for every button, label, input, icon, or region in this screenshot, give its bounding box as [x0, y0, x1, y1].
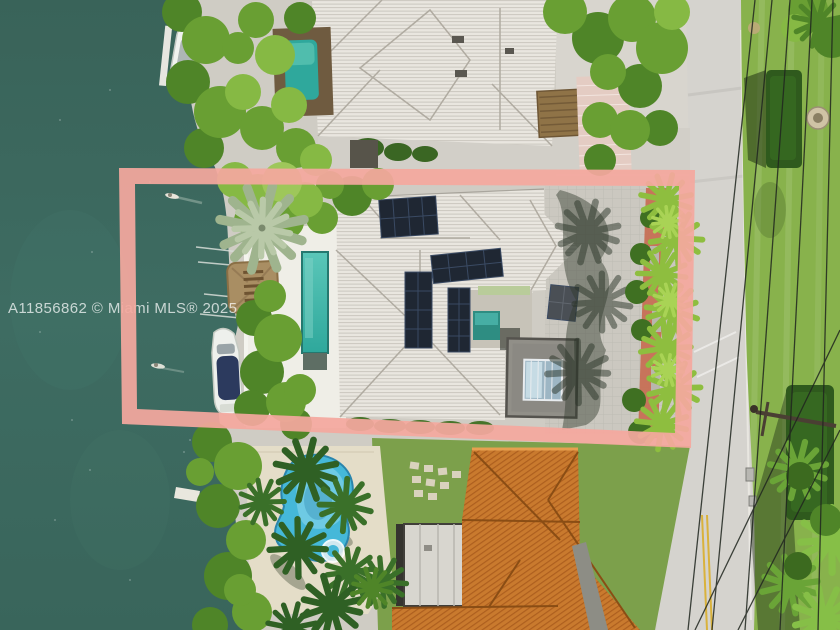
hedge — [744, 70, 802, 168]
aerial-scene: A11856862 © Miami MLS® 2025 — [0, 0, 840, 630]
top-mansion-roof — [312, 0, 558, 146]
street-sign — [746, 468, 754, 481]
roof-vent — [452, 36, 464, 43]
roof-vent — [455, 70, 467, 77]
lap-pool — [301, 251, 329, 370]
flat-roof — [404, 524, 464, 606]
boat-cover — [216, 355, 240, 400]
mls-aerial-photo: A11856862 © Miami MLS® 2025 — [0, 0, 840, 630]
garage-structure — [350, 140, 378, 168]
dirt-patch — [748, 22, 760, 34]
orange-roof-lower — [392, 606, 558, 630]
roof-vent — [505, 48, 514, 54]
stone-feature — [807, 107, 829, 129]
spa-cover — [303, 353, 327, 370]
